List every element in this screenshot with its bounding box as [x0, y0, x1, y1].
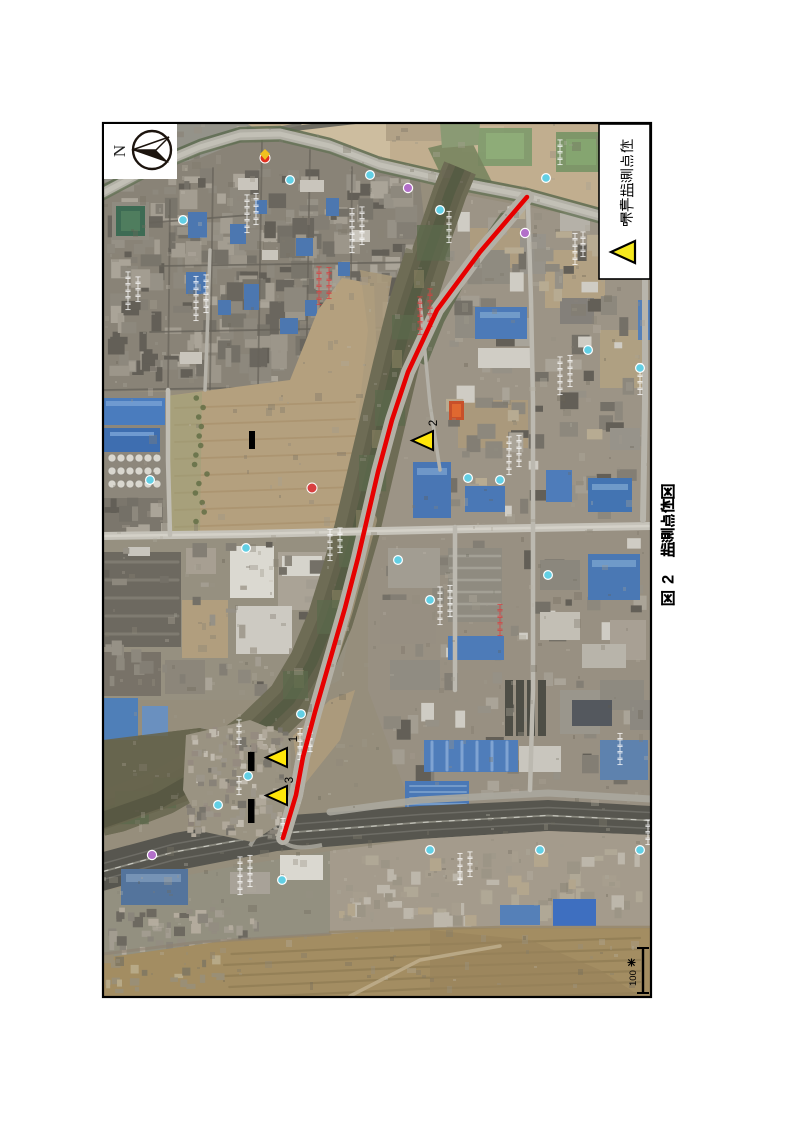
svg-text:3: 3 — [284, 777, 296, 783]
svg-text:2: 2 — [428, 420, 440, 426]
svg-text:1: 1 — [288, 736, 300, 742]
svg-text:100: 100 — [628, 970, 639, 986]
svg-text:2: 2 — [658, 575, 677, 584]
svg-text:N: N — [110, 145, 129, 157]
